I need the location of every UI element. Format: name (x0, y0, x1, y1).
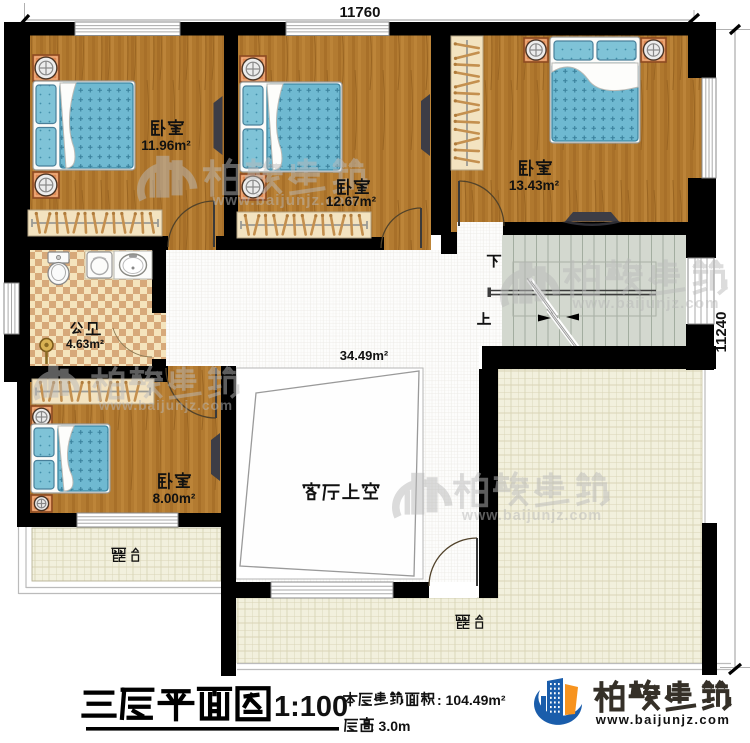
svg-text:1:100: 1:100 (274, 691, 348, 723)
svg-text:: 104.49m²: : 104.49m² (437, 692, 506, 708)
svg-text:www.baijunjz.com: www.baijunjz.com (98, 398, 233, 413)
svg-text:34.49m²: 34.49m² (340, 348, 389, 363)
svg-text:13.43m²: 13.43m² (509, 178, 560, 193)
svg-text:11760: 11760 (340, 4, 381, 21)
svg-text:11.96m²: 11.96m² (141, 138, 191, 153)
svg-text:8.00m²: 8.00m² (153, 491, 196, 506)
svg-text:www.baijunjz.com: www.baijunjz.com (595, 712, 731, 727)
svg-text:www.baijunjz.com: www.baijunjz.com (461, 508, 602, 524)
svg-text:: 3.0m: : 3.0m (370, 718, 410, 734)
svg-text:www.baijunjz.com: www.baijunjz.com (571, 295, 719, 312)
svg-text:12.67m²: 12.67m² (326, 194, 377, 209)
svg-text:4.63m²: 4.63m² (66, 337, 104, 351)
